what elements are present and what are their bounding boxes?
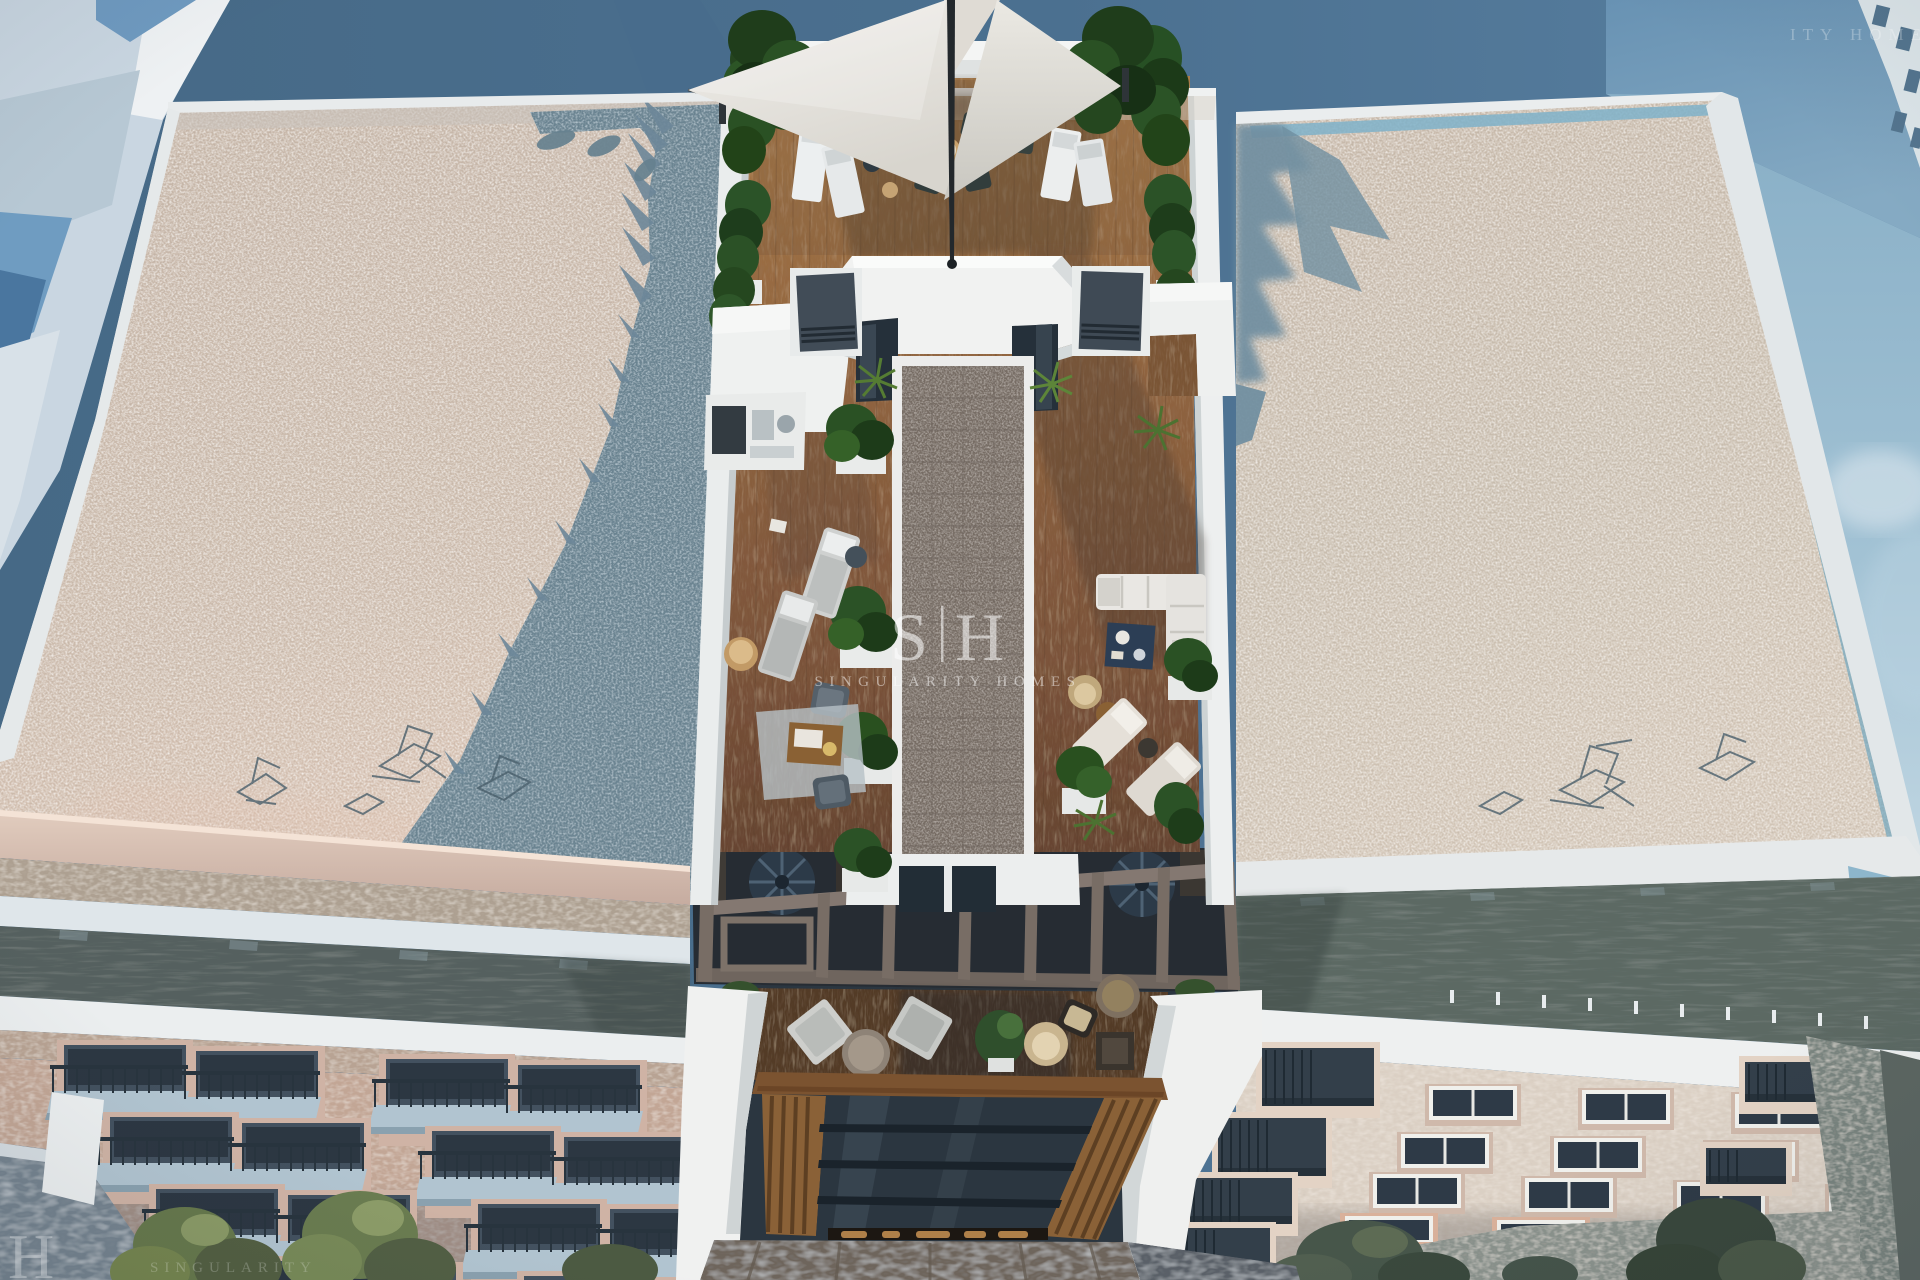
svg-text:S: S [890, 599, 928, 675]
svg-text:ITY HOMES: ITY HOMES [1790, 25, 1920, 44]
svg-text:H: H [955, 599, 1004, 675]
svg-text:SINGULARITY HOMES: SINGULARITY HOMES [814, 674, 1081, 690]
svg-text:SINGULARITY: SINGULARITY [150, 1260, 317, 1276]
svg-text:H: H [8, 1221, 54, 1280]
